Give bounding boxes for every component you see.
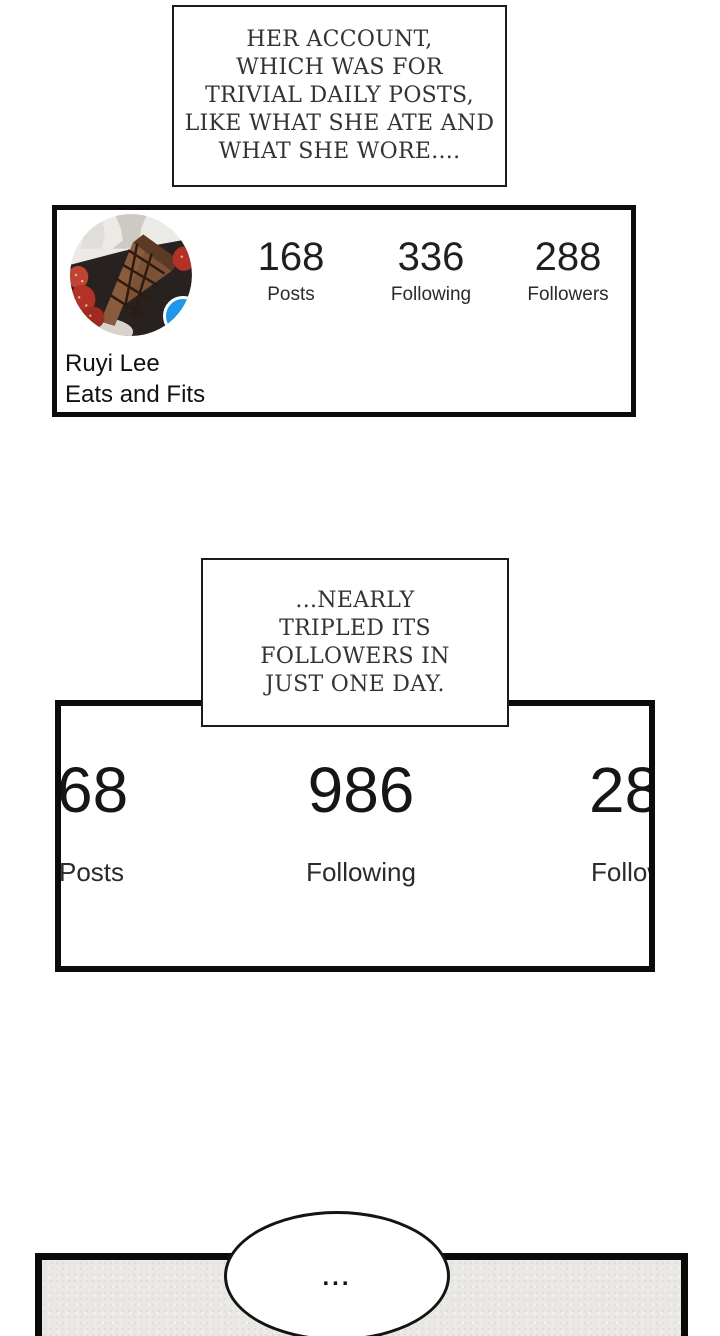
speech-bubble: ... bbox=[224, 1211, 450, 1336]
posts-count: 168 bbox=[221, 234, 361, 280]
profile-name: Ruyi Lee bbox=[65, 348, 160, 379]
posts-label: Posts bbox=[221, 283, 361, 307]
narration-box-middle: ...NEARLY TRIPLED ITS FOLLOWERS IN JUST … bbox=[201, 558, 509, 727]
followers-label: Followers bbox=[498, 283, 638, 307]
zoomed-following-label: Following bbox=[261, 856, 461, 888]
stat-followers[interactable]: 288 Followers bbox=[498, 234, 638, 307]
narration-middle-text: ...NEARLY TRIPLED ITS FOLLOWERS IN JUST … bbox=[260, 587, 449, 699]
followers-count: 288 bbox=[498, 234, 638, 280]
zoomed-posts-label: Posts bbox=[59, 856, 124, 888]
narration-box-top: HER ACCOUNT, WHICH WAS FOR TRIVIAL DAILY… bbox=[172, 5, 507, 187]
profile-bio: Eats and Fits bbox=[65, 379, 205, 410]
zoomed-following-count: 986 bbox=[261, 754, 461, 826]
following-label: Following bbox=[361, 283, 501, 307]
narration-top-text: HER ACCOUNT, WHICH WAS FOR TRIVIAL DAILY… bbox=[185, 26, 495, 166]
add-story-button[interactable]: + bbox=[163, 296, 192, 336]
zoomed-profile-panel: 68 Posts 986 Following 28 Followers bbox=[55, 700, 655, 972]
stat-posts[interactable]: 168 Posts bbox=[221, 234, 361, 307]
zoomed-followers-label: Followers bbox=[591, 856, 655, 888]
speech-bubble-text: ... bbox=[322, 1264, 351, 1292]
plus-icon: + bbox=[175, 303, 190, 329]
comic-page: HER ACCOUNT, WHICH WAS FOR TRIVIAL DAILY… bbox=[0, 0, 720, 1336]
stat-following[interactable]: 336 Following bbox=[361, 234, 501, 307]
zoomed-posts-count: 68 bbox=[57, 754, 128, 826]
profile-avatar[interactable]: + bbox=[70, 214, 192, 336]
zoomed-followers-count: 28 bbox=[589, 754, 655, 826]
profile-card: + 168 Posts 336 Following 288 Followers … bbox=[52, 205, 636, 417]
following-count: 336 bbox=[361, 234, 501, 280]
